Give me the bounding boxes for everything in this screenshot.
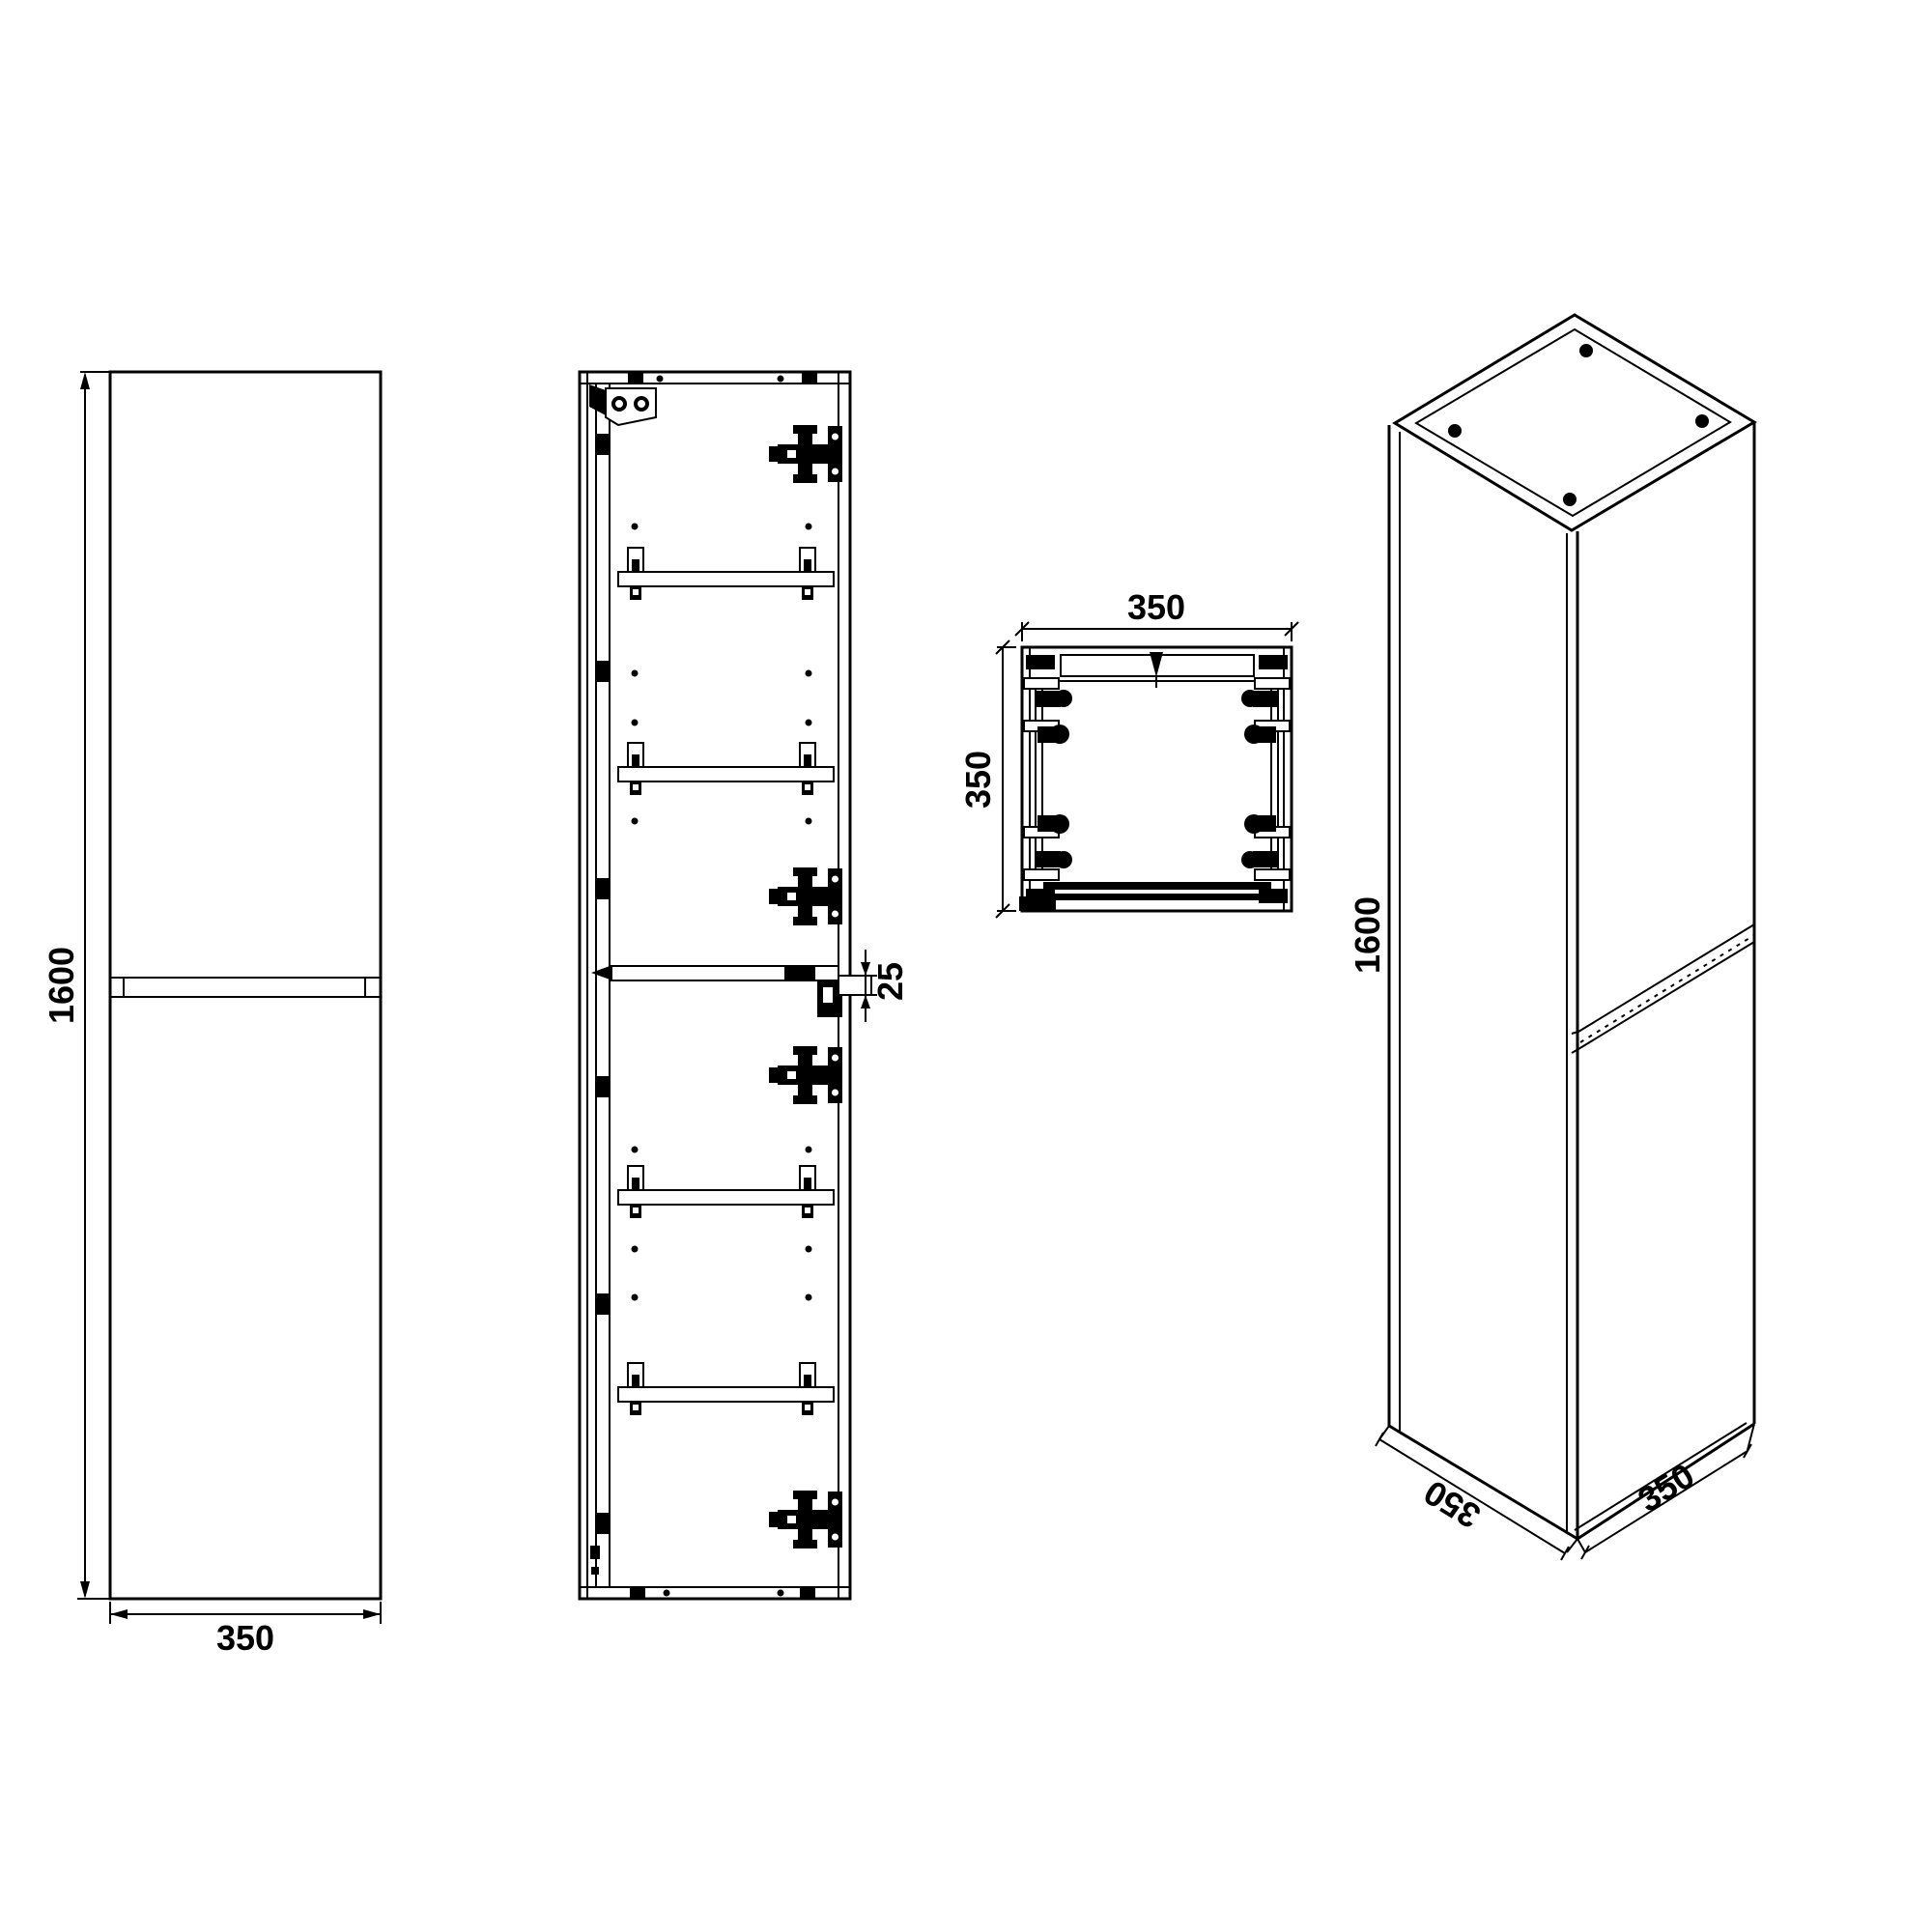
isometric-view: 350 350 1600 <box>1348 315 1754 1560</box>
top-depth-dimension: 350 <box>958 640 1016 918</box>
front-width-dimension: 350 <box>110 1602 381 1658</box>
top-width-dimension: 350 <box>1015 587 1298 641</box>
front-cabinet-outline <box>110 372 381 1599</box>
iso-depth-label: 350 <box>1417 1472 1488 1536</box>
divider-thickness-label: 25 <box>870 962 910 1001</box>
drawing-sheet: 1600 350 <box>0 0 1932 1932</box>
technical-drawing: 1600 350 <box>0 0 1932 1932</box>
iso-height-label: 1600 <box>1348 896 1387 974</box>
iso-door-split <box>1572 924 1754 1053</box>
top-depth-label: 350 <box>958 751 998 809</box>
front-view: 1600 350 <box>42 372 381 1658</box>
section-view: 25 <box>580 372 910 1599</box>
front-width-label: 350 <box>216 1618 274 1658</box>
top-width-label: 350 <box>1127 587 1185 627</box>
front-height-dimension: 1600 <box>42 372 110 1599</box>
top-view: 350 350 <box>958 587 1298 918</box>
iso-depth-dimension: 350 <box>1376 1426 1577 1560</box>
front-height-label: 1600 <box>42 947 81 1024</box>
iso-width-dimension: 350 <box>1577 1424 1754 1559</box>
